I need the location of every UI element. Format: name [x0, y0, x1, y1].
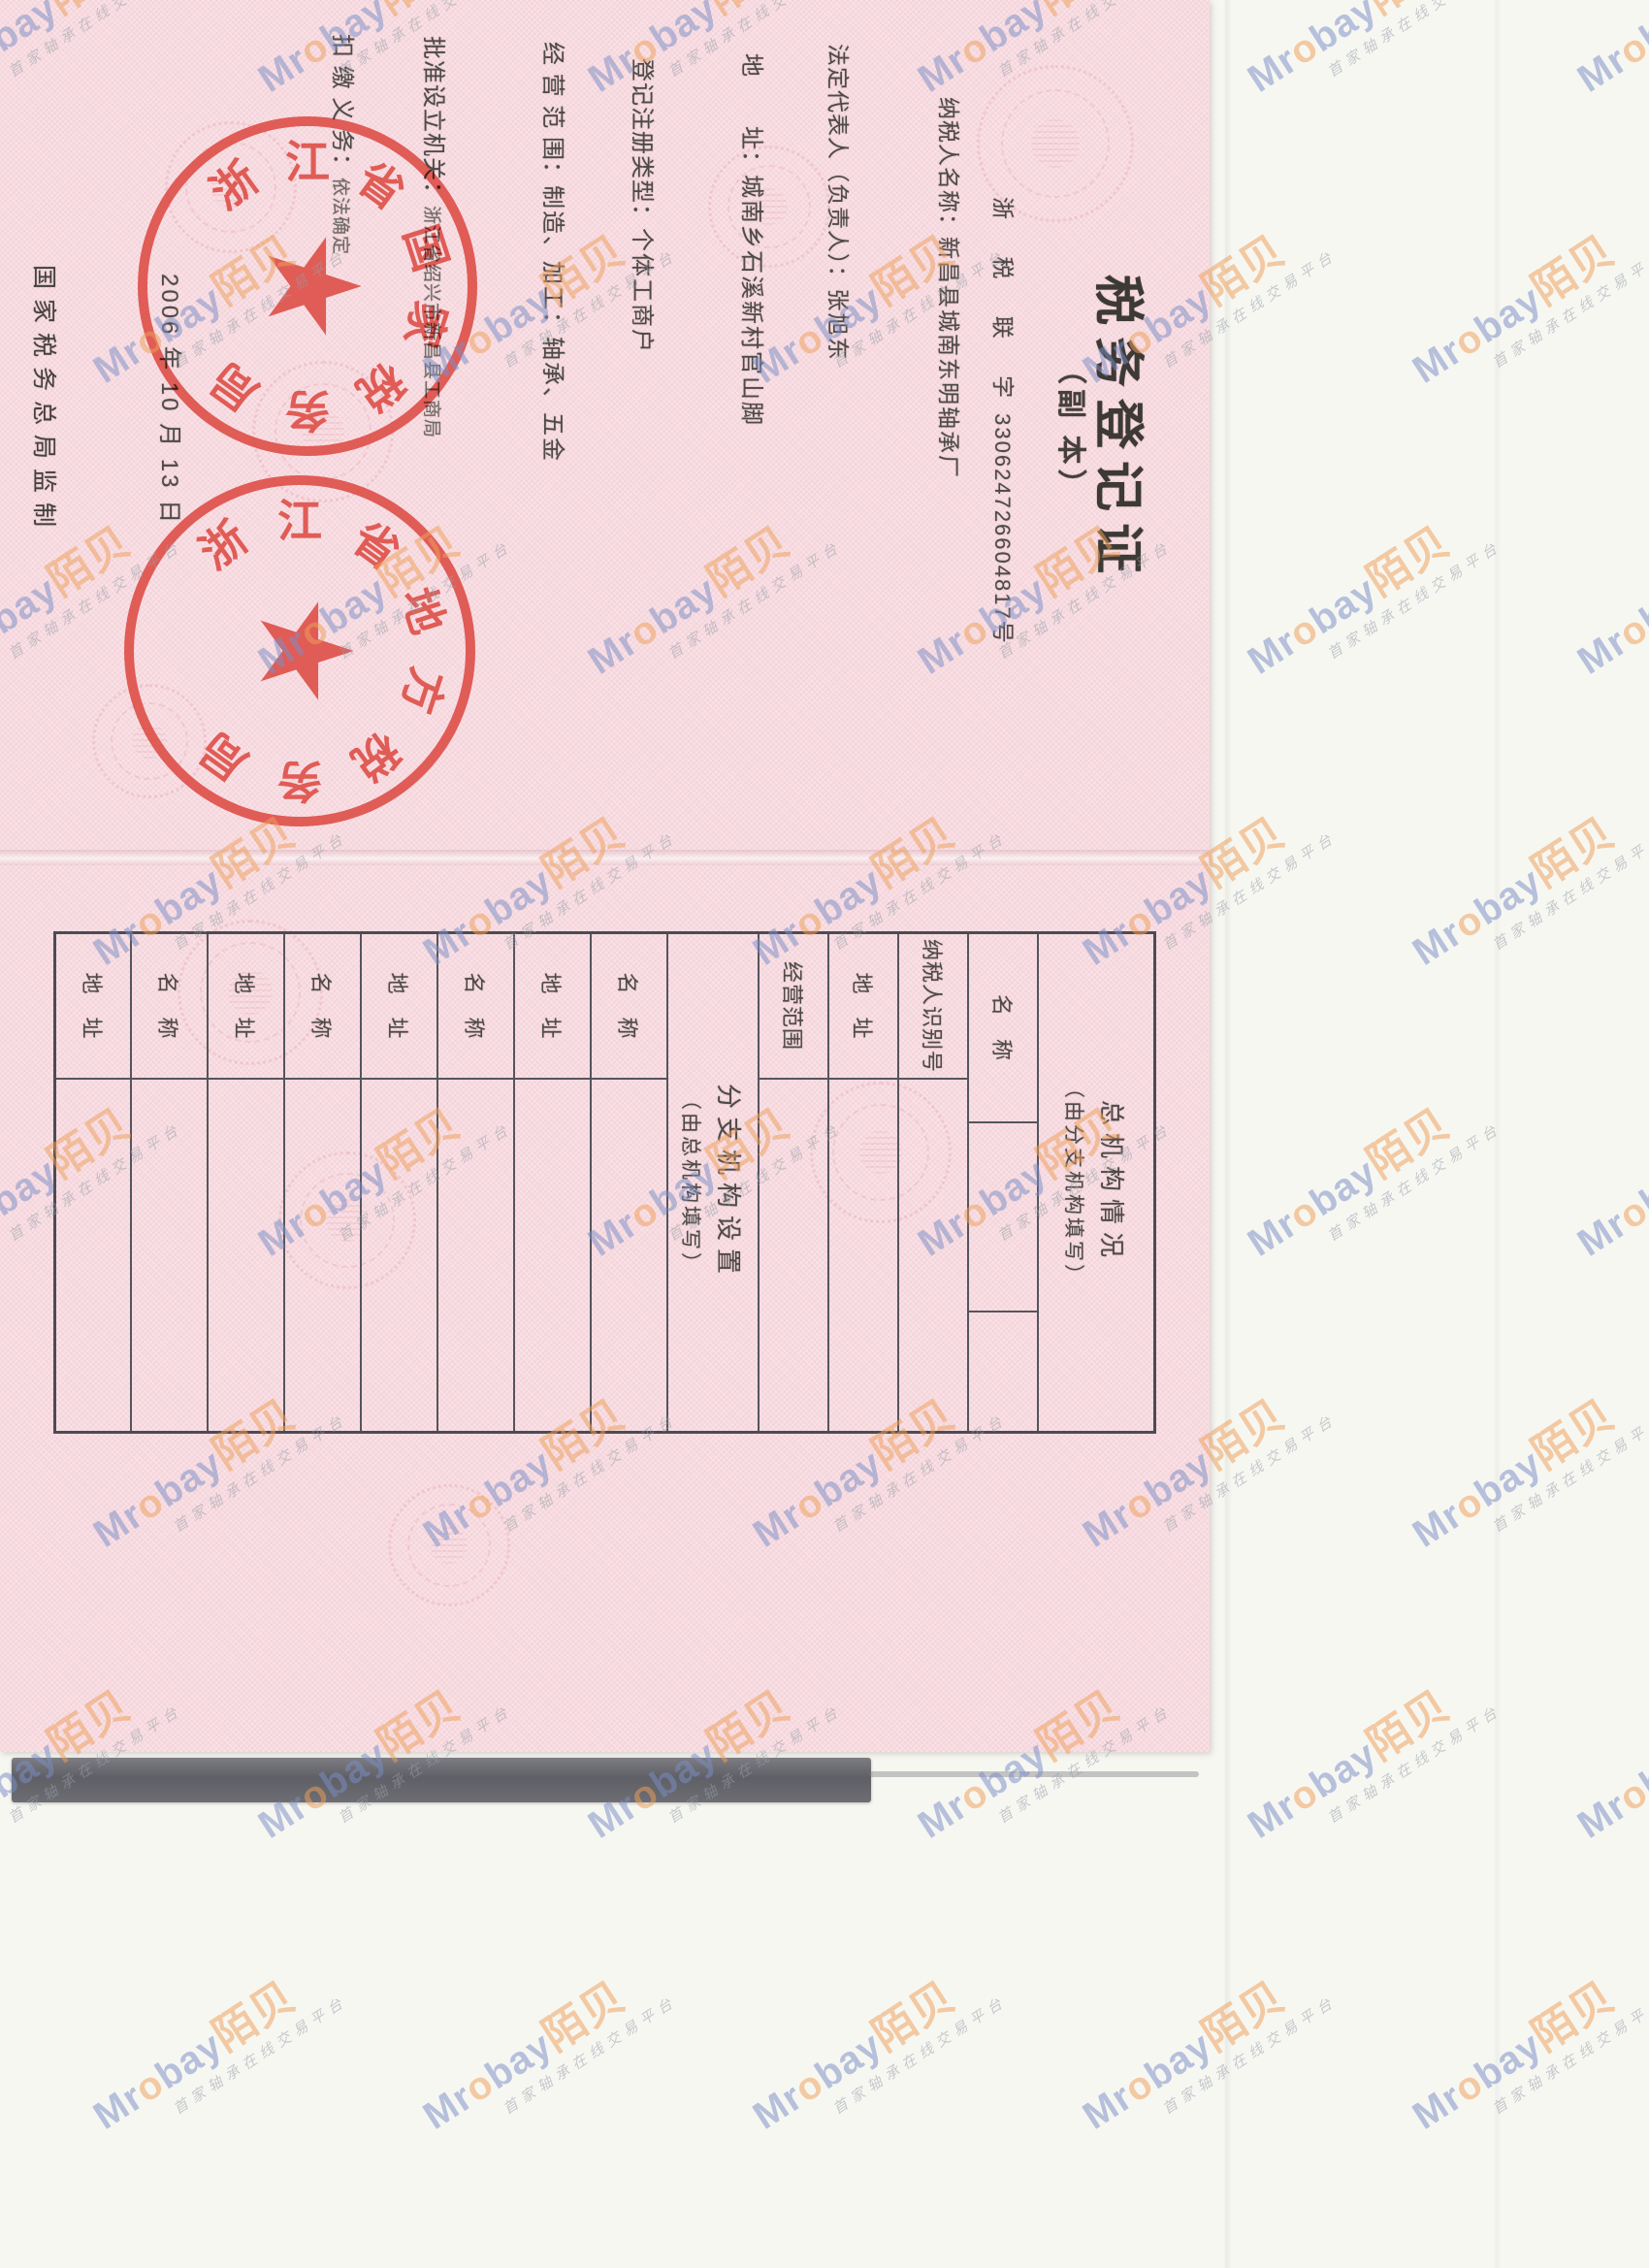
field-value: 新昌县城南东明轴承厂	[936, 237, 961, 479]
watermark-brand: Mrobay陌贝	[78, 1940, 340, 2141]
serial-suffix: 号	[990, 621, 1016, 643]
watermark-tile: Mrobay陌贝首家轴承在线交易平台	[1397, 1940, 1649, 2156]
field-label: 登记注册类型：	[629, 58, 655, 228]
watermark-brand: Mrobay陌贝	[1397, 1940, 1649, 2141]
watermark-brand: Mrobay陌贝	[1562, 1649, 1649, 1850]
table-row: 地 址	[513, 934, 590, 1431]
table-row: 分支机构设置（由总机构填写）	[666, 934, 758, 1431]
field-value: 城南乡石溪新村官山脚	[738, 175, 764, 427]
star-icon: ★	[241, 594, 369, 708]
local-tax-office-stamp: 浙江省地方税务局 ★	[124, 475, 475, 826]
stamp-character: 务	[275, 756, 324, 804]
table-row: 名 称	[436, 934, 513, 1431]
watermark-tagline: 首家轴承在线交易平台	[1323, 0, 1505, 81]
watermark-brand: Mrobay陌贝	[1397, 1358, 1649, 1559]
certificate-paper: 税务登记证 （副 本） 浙 税 联 字330624726604817号 纳税人名…	[0, 0, 1210, 1752]
certificate-subtitle: （副 本）	[1052, 355, 1095, 503]
table-row: 地 址	[207, 934, 283, 1431]
watermark-tagline: 首家轴承在线交易平台	[1488, 1991, 1649, 2119]
table-section-title: 分支机构设置	[713, 1084, 749, 1281]
watermark-brand: Mrobay陌贝	[1232, 1067, 1495, 1268]
watermark-brand: Mrobay陌贝	[1232, 0, 1495, 104]
field-label: 经 营 范 围：	[539, 42, 566, 185]
field-value: 个体工商户	[629, 228, 655, 354]
watermark-tile: Mrobay陌贝首家轴承在线交易平台	[1232, 1649, 1505, 1865]
watermark-tagline: 首家轴承在线交易平台	[828, 1991, 1011, 2119]
watermark-tile: Mrobay陌贝首家轴承在线交易平台	[1562, 1649, 1649, 1865]
serial-prefix: 浙 税 联 字	[990, 197, 1016, 413]
watermark-tagline: 首家轴承在线交易平台	[1323, 535, 1505, 664]
table-section-title: 总机构情况	[1096, 1100, 1132, 1265]
certificate-document: 税务登记证 （副 本） 浙 税 联 字330624726604817号 纳税人名…	[0, 0, 1208, 1746]
watermark-tagline: 首家轴承在线交易平台	[1488, 244, 1649, 373]
field-value: 制造、加工：轴承、五金	[539, 185, 566, 463]
watermark-tile: Mrobay陌贝首家轴承在线交易平台	[1562, 0, 1649, 119]
table-value-cell	[132, 1080, 207, 1431]
watermark-tile: Mrobay陌贝首家轴承在线交易平台	[1232, 485, 1505, 701]
table-row: 地 址	[827, 934, 897, 1431]
watermark-tagline: 首家轴承在线交易平台	[1323, 1118, 1505, 1246]
watermark-tagline: 首家轴承在线交易平台	[169, 1991, 351, 2119]
serial-number: 330624726604817	[990, 413, 1015, 621]
watermark-tagline: 首家轴承在线交易平台	[1323, 1700, 1505, 1828]
table-label-cell: 经营范围	[760, 934, 827, 1080]
table-value-cell	[760, 1080, 827, 1431]
national-tax-office-stamp: 浙江省国家税务局 ★	[138, 116, 477, 456]
watermark-brand: Mrobay陌贝	[1232, 485, 1495, 686]
table-row: 地 址	[360, 934, 436, 1431]
table-label-cell: 名 称	[969, 934, 1037, 1123]
table-section-note: （由总机构填写）	[678, 1089, 707, 1276]
watermark-tile: Mrobay陌贝首家轴承在线交易平台	[1562, 1067, 1649, 1283]
table-row: 名 称	[590, 934, 666, 1431]
table-label-cell: 地 址	[362, 934, 436, 1080]
watermark-brand: Mrobay陌贝	[407, 1940, 670, 2141]
watermark-brand: Mrobay陌贝	[1562, 485, 1649, 686]
watermark-tile: Mrobay陌贝首家轴承在线交易平台	[1397, 776, 1649, 992]
watermark-tile: Mrobay陌贝首家轴承在线交易平台	[1562, 485, 1649, 701]
table-row: 纳税人识别号	[897, 934, 967, 1431]
table-row: 名 称	[283, 934, 360, 1431]
table-label-cell: 名 称	[438, 934, 513, 1080]
table-label-cell: 地 址	[56, 934, 130, 1080]
issuer-footer: 国家税务总局监制	[28, 265, 63, 536]
table-label-cell: 地 址	[209, 934, 283, 1080]
table-row: 地 址	[56, 934, 130, 1431]
table-label-cell: 纳税人识别号	[899, 934, 967, 1080]
stamp-character: 江	[283, 139, 332, 187]
watermark-tile: Mrobay陌贝首家轴承在线交易平台	[1232, 0, 1505, 119]
watermark-tagline: 首家轴承在线交易平台	[1488, 826, 1649, 955]
table-value-cell	[592, 1080, 666, 1431]
back-table: 总机构情况（由分支机构填写）名 称纳税人识别号地 址经营范围分支机构设置（由总机…	[53, 931, 1156, 1434]
table-value-cell	[829, 1080, 897, 1431]
star-icon: ★	[248, 229, 376, 343]
certificate-title: 税务登记证	[1086, 275, 1159, 585]
field-registration-type: 登记注册类型：个体工商户	[628, 58, 662, 354]
stamp-character: 务	[283, 385, 332, 434]
watermark-tagline: 首家轴承在线交易平台	[1158, 1991, 1341, 2119]
field-label: 纳税人名称：	[936, 97, 961, 237]
watermark-tile: Mrobay陌贝首家轴承在线交易平台	[78, 1940, 351, 2156]
scanned-page: { "document": { "title": "税务登记证", "subti…	[0, 0, 1649, 2268]
field-label: 地 址：	[738, 53, 764, 175]
watermark-brand: Mrobay陌贝	[1562, 0, 1649, 104]
serial-number-line: 浙 税 联 字330624726604817号	[988, 197, 1021, 643]
watermark-tagline: 首家轴承在线交易平台	[499, 1991, 681, 2119]
table-value-cell	[515, 1080, 590, 1431]
watermark-brand: Mrobay陌贝	[1562, 1067, 1649, 1268]
table-value-cell	[899, 1080, 967, 1431]
field-taxpayer-name: 纳税人名称：新昌县城南东明轴承厂	[934, 97, 967, 479]
table-section-note: （由分支机构填写）	[1061, 1078, 1090, 1287]
stamp-character: 江	[275, 498, 324, 546]
field-business-scope: 经 营 范 围：制造、加工：轴承、五金	[538, 42, 572, 463]
table-label-cell: 地 址	[515, 934, 590, 1080]
table-label-cell: 名 称	[592, 934, 666, 1080]
field-value: 张旭东	[825, 289, 851, 362]
table-row: 经营范围	[758, 934, 827, 1431]
scanner-bed-edge	[12, 1758, 871, 1802]
field-legal-representative: 法定代表人（负责人）：张旭东	[824, 44, 857, 362]
table-row: 总机构情况（由分支机构填写）	[1037, 934, 1153, 1431]
watermark-tile: Mrobay陌贝首家轴承在线交易平台	[1397, 1358, 1649, 1574]
watermark-tile: Mrobay陌贝首家轴承在线交易平台	[1397, 194, 1649, 410]
table-row: 名 称	[130, 934, 207, 1431]
table-value-cell	[438, 1080, 513, 1431]
table-label-cell: 名 称	[285, 934, 360, 1080]
table-row: 名 称	[967, 934, 1037, 1431]
watermark-brand: Mrobay陌贝	[1397, 776, 1649, 977]
table-label-cell: 地 址	[829, 934, 897, 1080]
table-label-cell: 名 称	[132, 934, 207, 1080]
watermark-tagline: 首家轴承在线交易平台	[1488, 1409, 1649, 1537]
table-value-cell	[285, 1080, 360, 1431]
watermark-tile: Mrobay陌贝首家轴承在线交易平台	[407, 1940, 681, 2156]
watermark-tile: Mrobay陌贝首家轴承在线交易平台	[737, 1940, 1011, 2156]
table-value-cell	[969, 1123, 1037, 1312]
scanner-bed-edge-line	[869, 1771, 1199, 1777]
watermark-tile: Mrobay陌贝首家轴承在线交易平台	[1232, 1067, 1505, 1283]
table-value-cell	[969, 1312, 1037, 1431]
field-address: 地 址：城南乡石溪新村官山脚	[737, 53, 771, 427]
watermark-brand: Mrobay陌贝	[737, 1940, 1000, 2141]
table-value-cell	[362, 1080, 436, 1431]
table-value-cell	[56, 1080, 130, 1431]
watermark-brand: Mrobay陌贝	[1232, 1649, 1495, 1850]
watermark-brand: Mrobay陌贝	[1397, 194, 1649, 395]
watermark-brand: Mrobay陌贝	[1067, 1940, 1330, 2141]
table-value-cell	[209, 1080, 283, 1431]
field-label: 法定代表人（负责人）：	[825, 44, 851, 289]
watermark-tile: Mrobay陌贝首家轴承在线交易平台	[1067, 1940, 1341, 2156]
